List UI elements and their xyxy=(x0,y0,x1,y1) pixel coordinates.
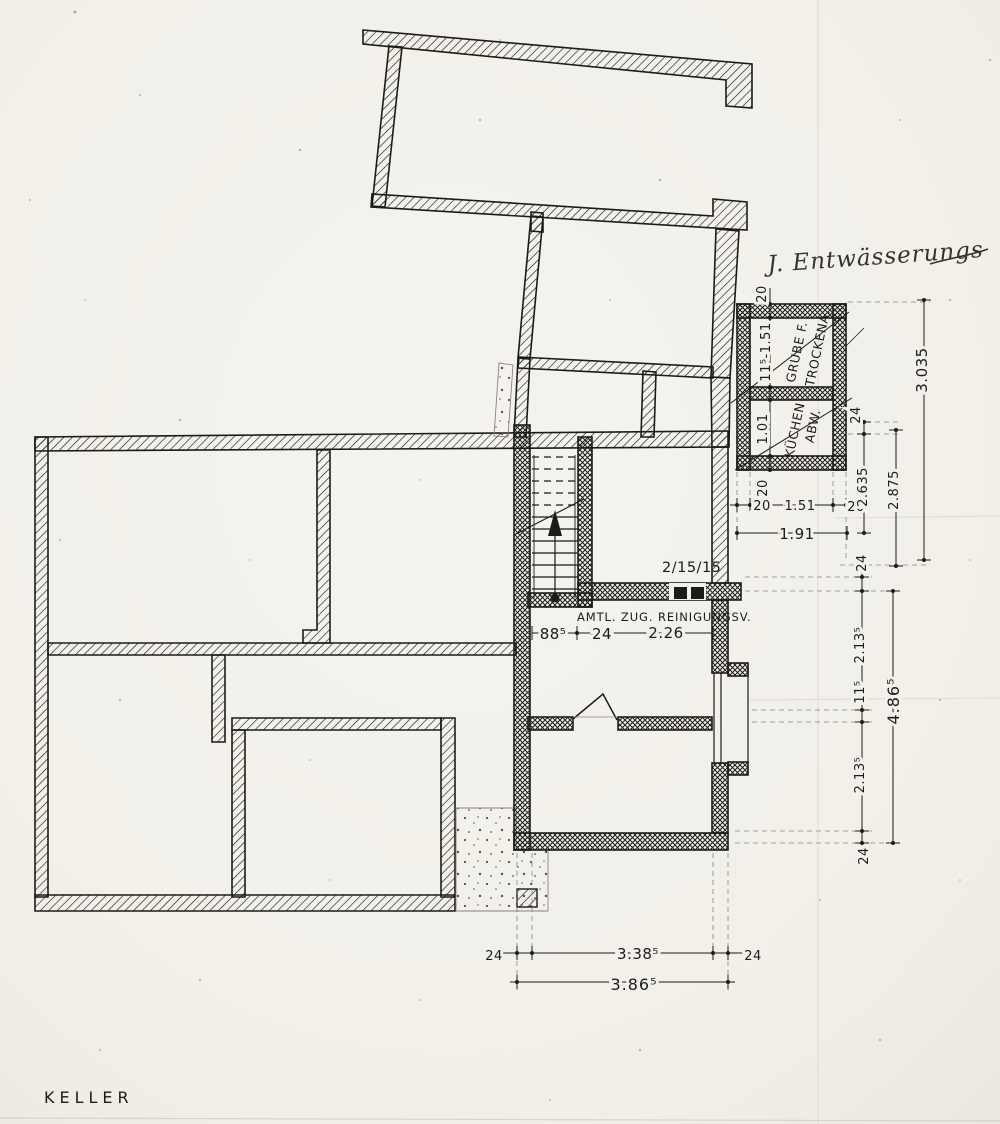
dim-rl-2135-lower: 2.13⁵ xyxy=(853,757,868,794)
wall-corridor-south-right xyxy=(618,717,712,730)
dim-bottom-24-left: 24 xyxy=(485,949,503,964)
dim-rl-2135-upper: 2.13⁵ xyxy=(853,627,868,664)
cleanout-symbol xyxy=(669,583,706,600)
cleanout-block-2 xyxy=(691,587,704,599)
dim-2875: 2.875 xyxy=(887,470,902,510)
dim-box-total-width: 1.91 xyxy=(779,525,814,543)
dim-2635: 2.635 xyxy=(856,467,871,507)
wall-lowroom-east xyxy=(441,718,455,897)
stair-start-dot xyxy=(551,594,559,602)
bay-wall-top xyxy=(728,663,748,676)
wall-room-south xyxy=(578,583,741,600)
wall-corridor-south-left xyxy=(528,717,573,730)
dim-box-inner-width: 1.51 xyxy=(785,499,816,514)
wall-stair-east xyxy=(578,437,592,607)
wall-stair-west xyxy=(514,425,530,850)
bay-wall-bottom xyxy=(728,762,748,775)
dim-rl-total: 4.86⁵ xyxy=(884,677,903,724)
wall-band3-mid xyxy=(641,371,656,437)
dim-bottom-3385: 3.38⁵ xyxy=(617,945,659,963)
dim-box-upper-cell: 11⁵-1.51 xyxy=(759,322,774,381)
wall-wing-south xyxy=(514,833,728,850)
dim-rl-24-top: 24 xyxy=(855,554,870,572)
cleanout-note-label: AMTL. ZUG. REINIGUNGSV. xyxy=(577,610,752,624)
grube-wall-right xyxy=(833,304,846,470)
dim-box-bottom-wall: 20 xyxy=(756,479,771,497)
door-spec-label: 2/15/15 xyxy=(662,560,721,576)
dim-rl-24-bottom: 24 xyxy=(857,847,872,865)
dim-3035: 3.035 xyxy=(913,347,931,392)
wall-main-west xyxy=(35,437,48,897)
drawing-title: KELLER xyxy=(44,1088,134,1107)
grube-wall-divider xyxy=(750,387,833,400)
wall-divider-lower xyxy=(212,655,225,742)
dim-bottom-total: 3.86⁵ xyxy=(610,975,657,994)
wall-wing-east-lower xyxy=(712,763,728,833)
wall-lowroom-west xyxy=(232,730,245,897)
dim-right-upper-24: 24 xyxy=(849,406,864,424)
dim-corridor-885: 88⁵ xyxy=(540,625,567,643)
dim-corridor-226: 2.26 xyxy=(648,624,683,642)
wall-lowroom-north xyxy=(232,718,441,730)
floor-plan-drawing: 20 11⁵-1.51 1.01 20 GRUBE F. TROCKENA. K… xyxy=(0,0,1000,1124)
dim-box-left-wall: 20 xyxy=(753,499,771,514)
grube-wall-left xyxy=(737,304,750,470)
dim-bottom-24-right: 24 xyxy=(744,949,762,964)
dim-corridor-24: 24 xyxy=(592,625,612,643)
cleanout-block-1 xyxy=(674,587,687,599)
entrance-pier xyxy=(517,889,537,907)
drawing-sheet: 20 11⁵-1.51 1.01 20 GRUBE F. TROCKENA. K… xyxy=(0,0,1000,1124)
dim-box-lower-cell: 1.01 xyxy=(756,414,771,445)
dim-box-top-wall: 20 xyxy=(755,285,770,303)
dim-rl-115: 11⁵ xyxy=(853,680,868,703)
wall-main-mid-horizontal xyxy=(48,643,516,655)
